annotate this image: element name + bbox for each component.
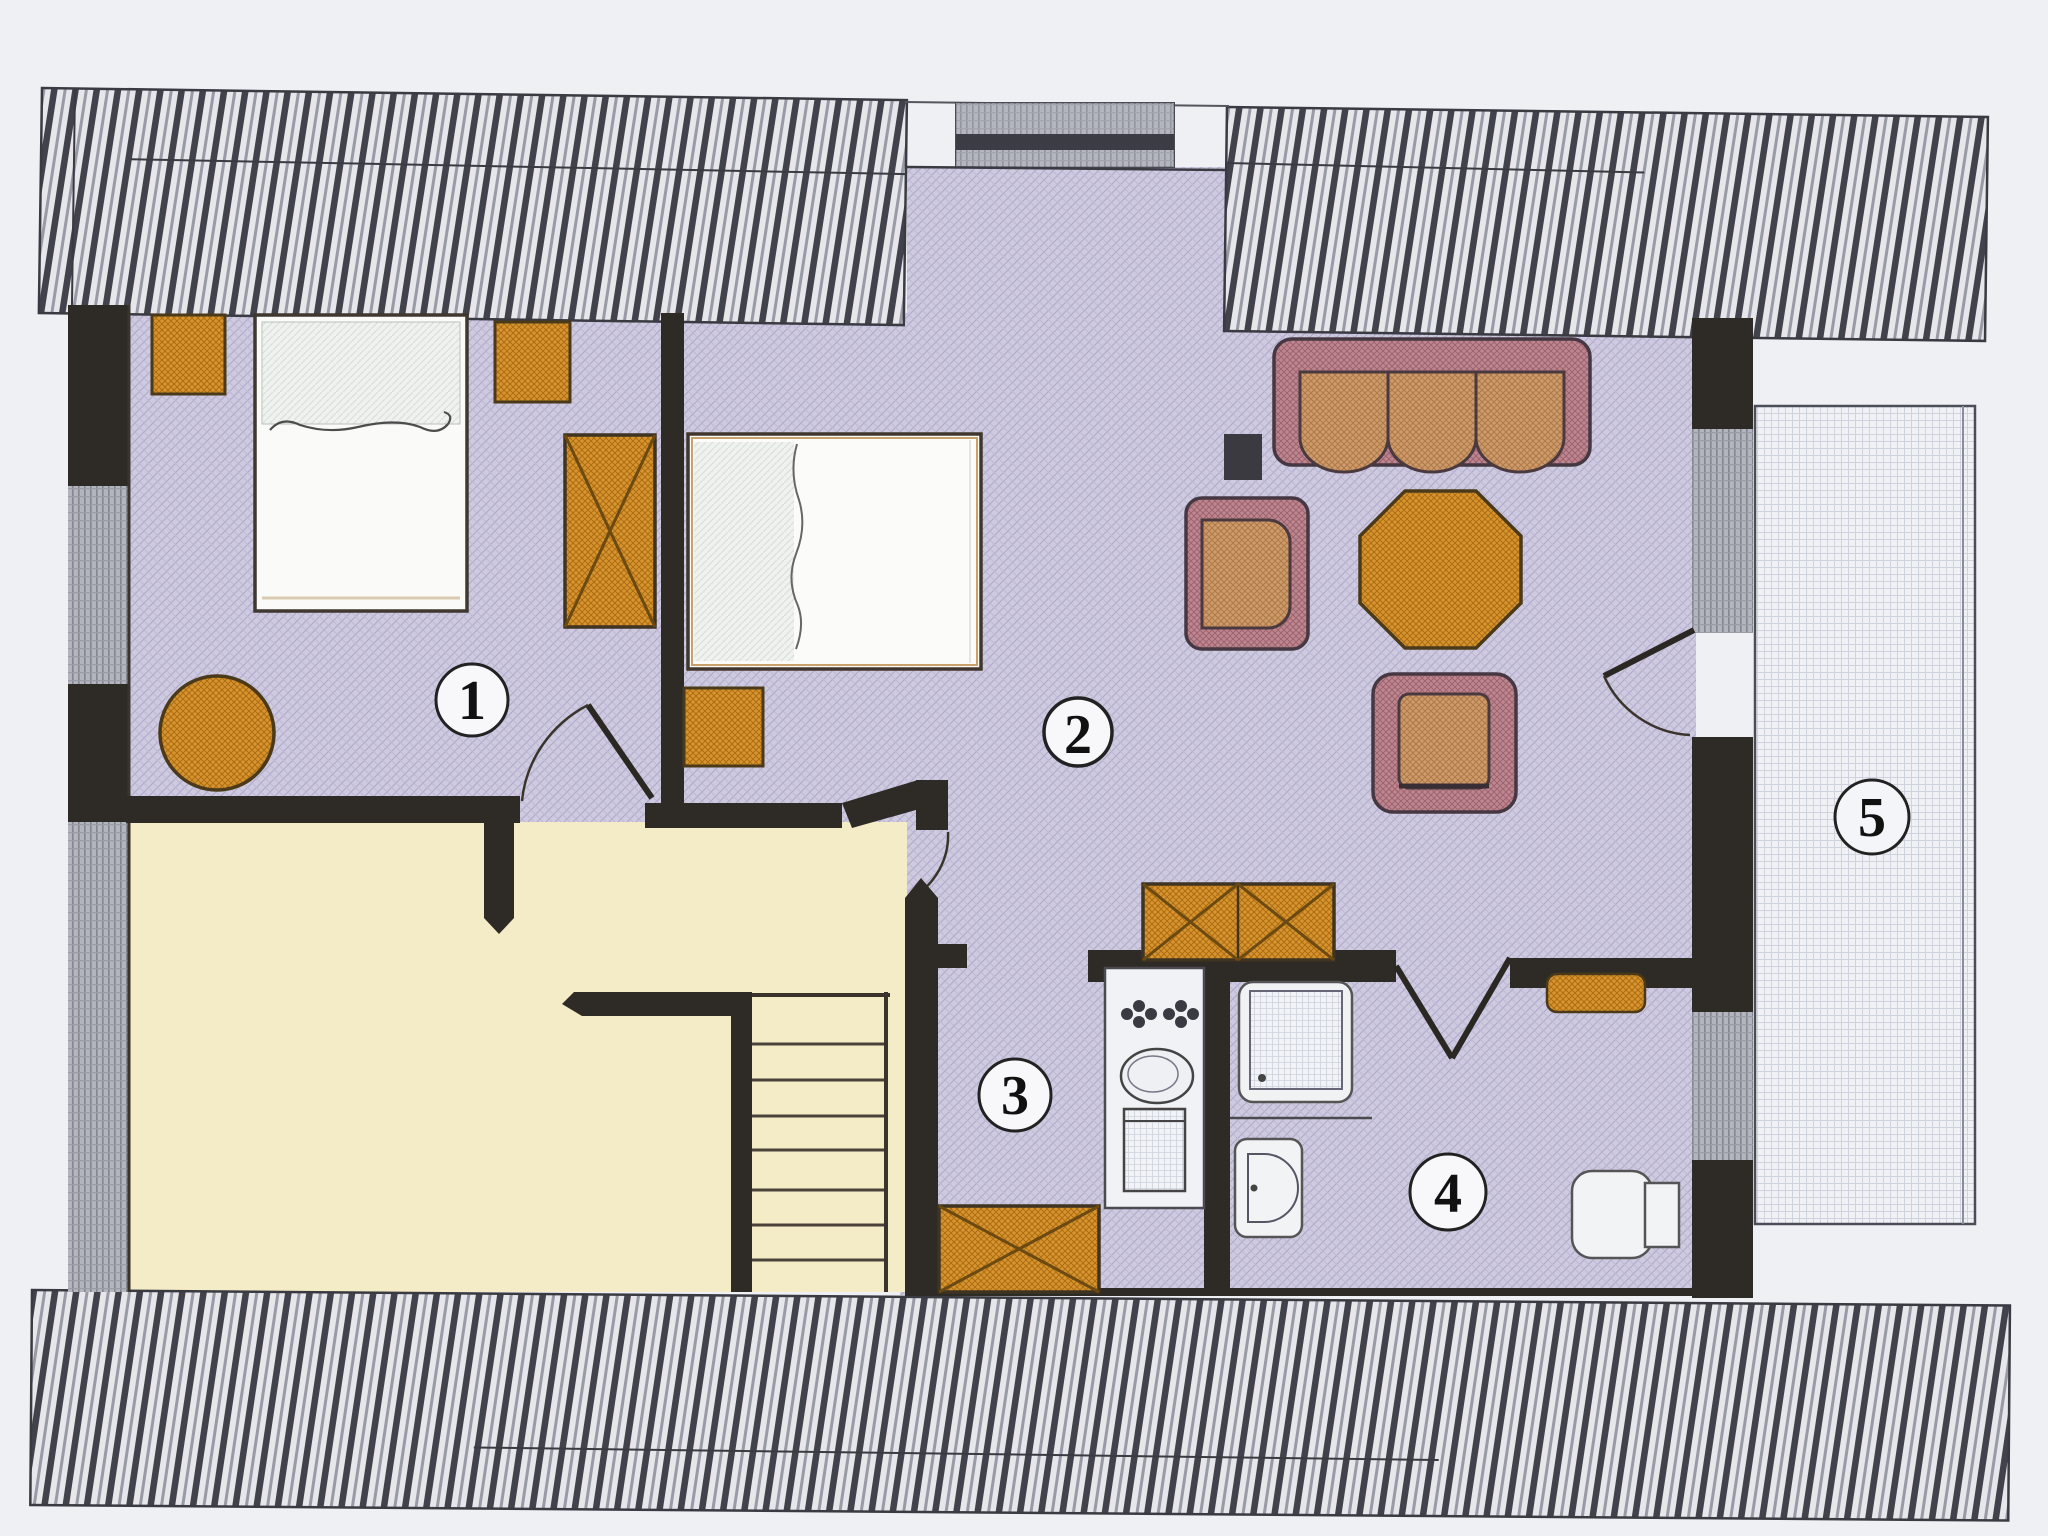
svg-text:5: 5 — [1858, 787, 1886, 849]
svg-text:4: 4 — [1434, 1163, 1462, 1225]
svg-text:3: 3 — [1001, 1065, 1029, 1127]
svg-text:2: 2 — [1064, 704, 1092, 766]
svg-text:1: 1 — [458, 670, 486, 732]
